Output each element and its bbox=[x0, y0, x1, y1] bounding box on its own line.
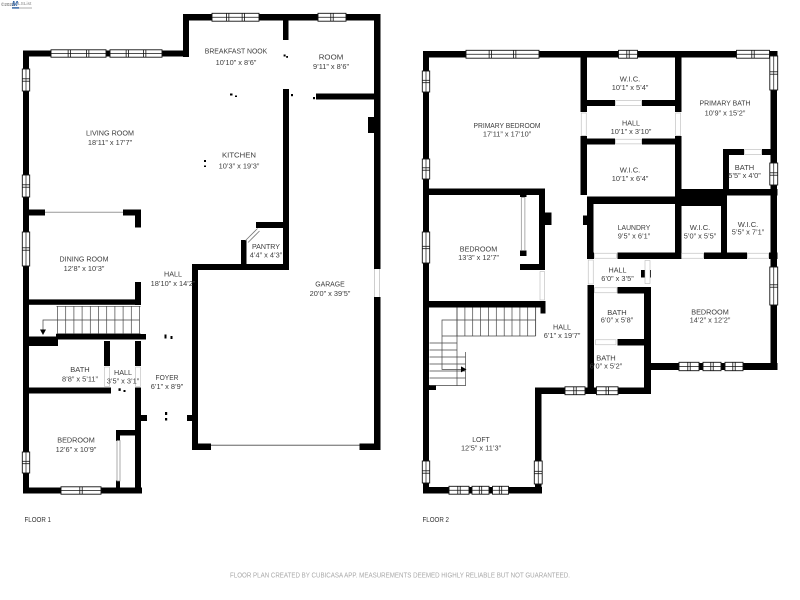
svg-text:BATH: BATH bbox=[70, 365, 90, 374]
svg-text:3’5” x 3’1”: 3’5” x 3’1” bbox=[107, 377, 140, 386]
svg-text:6’1” x 8’9”: 6’1” x 8’9” bbox=[151, 382, 184, 391]
svg-text:6’0” x 3’5”: 6’0” x 3’5” bbox=[601, 274, 634, 283]
svg-text:10’9” x 15’2”: 10’9” x 15’2” bbox=[705, 109, 746, 118]
svg-text:5’5” x 4’0”: 5’5” x 4’0” bbox=[728, 171, 761, 180]
svg-text:12’8” x 10’3”: 12’8” x 10’3” bbox=[64, 264, 105, 273]
svg-text:PRIMARY BATH: PRIMARY BATH bbox=[700, 99, 751, 108]
svg-text:FLOOR 2: FLOOR 2 bbox=[423, 515, 450, 524]
svg-text:BEDROOM: BEDROOM bbox=[57, 436, 95, 445]
svg-text:5’0” x 5’5”: 5’0” x 5’5” bbox=[684, 232, 717, 241]
svg-text:ROOM: ROOM bbox=[319, 53, 344, 62]
svg-text:DINING ROOM: DINING ROOM bbox=[60, 255, 109, 264]
svg-text:LIVING ROOM: LIVING ROOM bbox=[86, 129, 134, 138]
svg-text:5’5” x 7’1”: 5’5” x 7’1” bbox=[732, 228, 765, 237]
svg-text:10’10” x 8’6”: 10’10” x 8’6” bbox=[216, 58, 257, 67]
svg-text:HALL: HALL bbox=[164, 270, 182, 279]
svg-text:6’1” x 19’7”: 6’1” x 19’7” bbox=[544, 331, 581, 340]
svg-text:10’3” x 19’3”: 10’3” x 19’3” bbox=[219, 162, 260, 171]
svg-text:6’0” x 5’2”: 6’0” x 5’2” bbox=[590, 362, 623, 371]
svg-text:10’1” x 3’10”: 10’1” x 3’10” bbox=[611, 127, 652, 136]
svg-text:20’0” x 39’5”: 20’0” x 39’5” bbox=[310, 289, 351, 298]
svg-text:12’5” x 11’3”: 12’5” x 11’3” bbox=[461, 444, 502, 453]
svg-text:12’6” x 10’9”: 12’6” x 10’9” bbox=[56, 445, 97, 454]
svg-text:BREAKFAST NOOK: BREAKFAST NOOK bbox=[205, 47, 268, 56]
svg-text:13’3” x 12’7”: 13’3” x 12’7” bbox=[458, 253, 499, 262]
svg-text:9’11” x 8’6”: 9’11” x 8’6” bbox=[313, 62, 350, 71]
svg-text:9’5” x 6’1”: 9’5” x 6’1” bbox=[618, 232, 651, 241]
svg-text:17’11” x 17’10”: 17’11” x 17’10” bbox=[483, 130, 532, 139]
svg-text:LSList: LSList bbox=[18, 1, 32, 7]
svg-text:FLOOR PLAN CREATED BY CUBICASA: FLOOR PLAN CREATED BY CUBICASA APP. MEAS… bbox=[230, 573, 570, 580]
svg-text:18’10” x 14’2”: 18’10” x 14’2” bbox=[151, 279, 196, 288]
svg-text:10’1” x 5’4”: 10’1” x 5’4” bbox=[612, 83, 649, 92]
svg-text:KITCHEN: KITCHEN bbox=[222, 151, 256, 160]
svg-text:8’8” x 5’11”: 8’8” x 5’11” bbox=[62, 375, 99, 384]
svg-text:6’0” x 5’8”: 6’0” x 5’8” bbox=[601, 316, 634, 325]
svg-text:GARAGE: GARAGE bbox=[315, 280, 345, 289]
svg-text:10’1” x 6’4”: 10’1” x 6’4” bbox=[612, 174, 649, 183]
svg-text:14’2” x 12’2”: 14’2” x 12’2” bbox=[690, 316, 731, 325]
svg-text:FLOOR 1: FLOOR 1 bbox=[25, 515, 52, 524]
svg-text:18’11” x 17’7”: 18’11” x 17’7” bbox=[88, 138, 133, 147]
svg-text:4’4” x 4’3”: 4’4” x 4’3” bbox=[250, 251, 283, 260]
svg-text:FOYER: FOYER bbox=[156, 373, 179, 382]
